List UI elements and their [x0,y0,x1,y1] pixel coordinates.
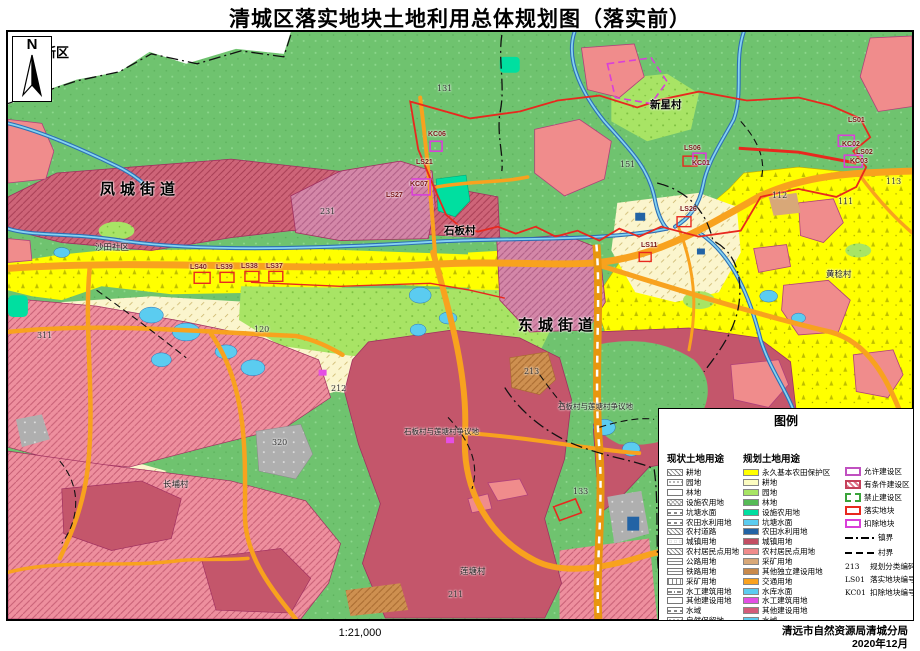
plan-map-page: 清城区落实地块土地利用总体规划图（落实前） [0,0,920,651]
legend-pattern-swatch [667,617,683,621]
north-label: N [13,37,51,53]
legend-color-swatch [743,617,759,621]
north-arrow: N [12,36,52,102]
legend-zone-column: 允许建设区 有条件建设区 禁止建设区 落实地块 扣除地块 [845,451,913,599]
legend-current-item: 园地 [667,478,739,488]
legend-item-label: 有条件建设区 [864,479,910,490]
north-arrow-icon [19,53,45,97]
legend-current-item: 其他建设用地 [667,596,739,606]
legend-panel: 图例 现状土地用途 耕地 园地 林地 设施农用地 [658,408,914,621]
legend-color-swatch [743,528,759,535]
legend-pattern-swatch [667,568,683,575]
legend-color-swatch [743,469,759,476]
legend-item-label: 允许建设区 [864,466,902,477]
legend-title: 图例 [659,412,913,429]
legend-planned-item: 水域 [743,616,843,621]
legend-pattern-swatch [667,558,683,565]
legend-pattern-swatch [667,588,683,595]
legend-current-item: 耕地 [667,468,739,478]
legend-item-label: 水域 [762,615,777,621]
legend-pattern-swatch [667,519,683,526]
legend-zone-item: 扣除地块 [845,517,913,530]
legend-planned-column: 规划土地用途 永久基本农田保护区 耕地 园地 林地 [743,451,843,621]
legend-planned-item: 交通用地 [743,576,843,586]
legend-planned-title: 规划土地用途 [743,451,843,465]
legend-code-item: KC01 扣除地块编号 [845,586,913,599]
legend-planned-item: 耕地 [743,478,843,488]
legend-pattern-swatch [667,499,683,506]
legend-pattern-swatch [667,607,683,614]
legend-pattern-swatch [667,538,683,545]
legend-line-item: 村界 [845,545,913,560]
legend-color-swatch [743,558,759,565]
legend-item-label: 镇界 [878,532,893,543]
legend-code-value: 213 [845,562,867,571]
legend-item-label: 村界 [878,547,893,558]
legend-pattern-swatch [667,509,683,516]
legend-zone-swatch [845,480,861,489]
legend-pattern-swatch [667,528,683,535]
legend-current-item: 自然保留地 [667,616,739,621]
map-scale: 1:21,000 [300,627,420,639]
legend-zone-item: 有条件建设区 [845,478,913,491]
legend-current-column: 现状土地用途 耕地 园地 林地 设施农用地 [667,451,739,621]
legend-planned-item: 园地 [743,488,843,498]
legend-zone-item: 落实地块 [845,504,913,517]
legend-color-swatch [743,578,759,585]
legend-code-value: LS01 [845,575,867,584]
legend-item-label: 扣除地块编号 [870,587,914,598]
page-title: 清城区落实地块土地利用总体规划图（落实前） [0,3,920,33]
legend-item-label: 规划分类编码 [870,561,914,572]
legend-code-value: KC01 [845,588,867,597]
map-attribution: 清远市自然资源局清城分局 2020年12月 [782,625,908,651]
legend-line-swatch [845,552,875,554]
legend-planned-item: 其他独立建设用地 [743,566,843,576]
legend-code-item: 213 规划分类编码 [845,560,913,573]
legend-color-swatch [743,548,759,555]
legend-item-label: 禁止建设区 [864,492,902,503]
legend-item-label: 扣除地块 [864,518,894,529]
legend-pattern-swatch [667,578,683,585]
legend-item-label: 落实地块编号 [870,574,914,585]
legend-planned-item: 永久基本农田保护区 [743,468,843,478]
legend-color-swatch [743,597,759,604]
legend-zone-swatch [845,467,861,476]
legend-color-swatch [743,499,759,506]
legend-color-swatch [743,519,759,526]
legend-planned-item: 设施农用地 [743,507,843,517]
legend-color-swatch [743,588,759,595]
legend-zone-swatch [845,519,861,528]
legend-planned-item: 其他建设用地 [743,606,843,616]
legend-color-swatch [743,479,759,486]
legend-planned-item: 农田水利用地 [743,527,843,537]
legend-zone-item: 禁止建设区 [845,491,913,504]
legend-pattern-swatch [667,597,683,604]
legend-planned-item: 农村居民点用地 [743,547,843,557]
legend-item-label: 落实地块 [864,505,894,516]
legend-pattern-swatch [667,469,683,476]
legend-pattern-swatch [667,489,683,496]
legend-color-swatch [743,607,759,614]
map-date: 2020年12月 [782,638,908,651]
legend-color-swatch [743,489,759,496]
legend-zone-item: 允许建设区 [845,465,913,478]
legend-color-swatch [743,568,759,575]
legend-pattern-swatch [667,548,683,555]
legend-zone-swatch [845,506,861,515]
legend-line-swatch [845,537,875,539]
legend-color-swatch [743,509,759,516]
legend-pattern-swatch [667,479,683,486]
legend-color-swatch [743,538,759,545]
legend-current-title: 现状土地用途 [667,451,739,465]
legend-code-item: LS01 落实地块编号 [845,573,913,586]
legend-zone-swatch [845,493,861,502]
agency-name: 清远市自然资源局清城分局 [782,625,908,638]
legend-line-item: 镇界 [845,530,913,545]
legend-item-label: 自然保留地 [686,615,724,621]
